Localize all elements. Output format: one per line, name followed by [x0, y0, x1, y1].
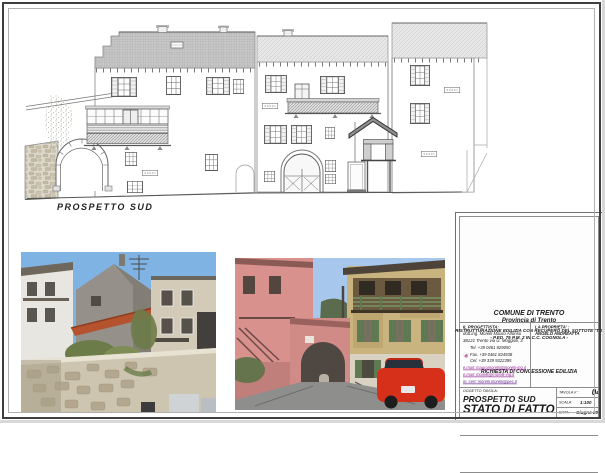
designer-fax: Fax. +39 0461 824938 — [470, 352, 512, 357]
owner-column: LA PROPRIETA' : ANGELO ANDREATTA — [531, 323, 598, 387]
date-value: Giugno 2013 — [576, 411, 598, 416]
facade-tag — [262, 103, 277, 108]
meta-column: TAVOLA n°: 04 SCALA: 1:100 DATA: Giugno … — [557, 388, 598, 418]
designer-name: dott.ing. Morelli Mauro Alfonso — [463, 332, 511, 337]
designer-email-link-1[interactable]: e.mail: mauromorelli@morelli-ing.it — [463, 366, 509, 371]
balcony-left — [84, 106, 171, 150]
designer-email-link-2[interactable]: e.mail: morelli@morelli-ing.it — [463, 373, 509, 378]
wall-sign — [305, 336, 314, 343]
empty-section — [460, 307, 598, 323]
owner-label: LA PROPRIETA' : — [535, 326, 579, 330]
designer-phones: Tel. +39 0461 829050 Fax. +39 0461 82493… — [470, 345, 530, 365]
roof-left — [95, 26, 255, 71]
chimney — [158, 27, 167, 33]
wooden-balcony — [351, 278, 443, 313]
date-row: DATA: Giugno 2013 — [557, 408, 598, 418]
shuttered-windows — [357, 320, 443, 342]
license-plate — [401, 386, 415, 393]
subject-section: OGGETTO TAVOLA: PROSPETTO SUD STATO DI F… — [460, 388, 598, 418]
chimney — [220, 27, 227, 33]
designer-tel: Tel. +39 0461 829050 — [470, 346, 512, 351]
garage-arch-door — [281, 150, 323, 192]
sheet-number-value: 04 — [592, 388, 598, 397]
designer-pec-link[interactable]: m. cert: morelli.morelli@pec.it — [463, 380, 509, 385]
photo-context-1 — [21, 252, 216, 412]
designer-address: 38121 Trento via U. Moggioli, 3 — [463, 338, 511, 343]
subject-column: OGGETTO TAVOLA: PROSPETTO SUD STATO DI F… — [460, 388, 557, 418]
chimney — [284, 31, 292, 37]
drawing-caption: PROSPETTO SUD — [57, 202, 153, 212]
subject-label: OGGETTO TAVOLA: — [463, 390, 521, 393]
title-block: COMUNE DI TRENTO Provincia di Trento RIS… — [455, 212, 603, 423]
house-left — [21, 262, 73, 364]
roof-middle — [257, 30, 388, 65]
facade-tag — [444, 87, 459, 92]
scale-label: SCALA: — [559, 401, 572, 405]
photo-context-2 — [235, 258, 445, 410]
drawing-sheet: { "sheet": { "drawing_caption": "PROSPET… — [0, 0, 605, 423]
vegetation — [45, 95, 73, 149]
roof-right — [392, 23, 487, 61]
facade-tag — [421, 151, 436, 156]
parties-section: IL PROGETTISTA: dott.ing. Morelli Mauro … — [460, 323, 598, 388]
sheet-number-row: TAVOLA n°: 04 — [557, 388, 598, 398]
owner-name: ANGELO ANDREATTA — [535, 332, 579, 337]
title-block-inner: COMUNE DI TRENTO Provincia di Trento RIS… — [459, 216, 599, 419]
scale-value: 1:100 — [580, 400, 592, 405]
scale-row: SCALA: 1:100 — [557, 398, 598, 408]
sheet-subject-line1: PROSPETTO SUD — [463, 395, 556, 404]
designer-cell: Cel. +39 339 9322395 — [470, 359, 512, 364]
facade-tag — [142, 170, 157, 175]
sheet-number-label: TAVOLA n°: — [559, 391, 579, 395]
designer-label: IL PROGETTISTA: — [463, 326, 510, 330]
designer-logo — [463, 346, 468, 364]
designer-column: IL PROGETTISTA: dott.ing. Morelli Mauro … — [460, 323, 531, 387]
sheet-subject-line2: STATO DI FATTO — [463, 404, 556, 416]
date-label: DATA: — [559, 411, 569, 415]
